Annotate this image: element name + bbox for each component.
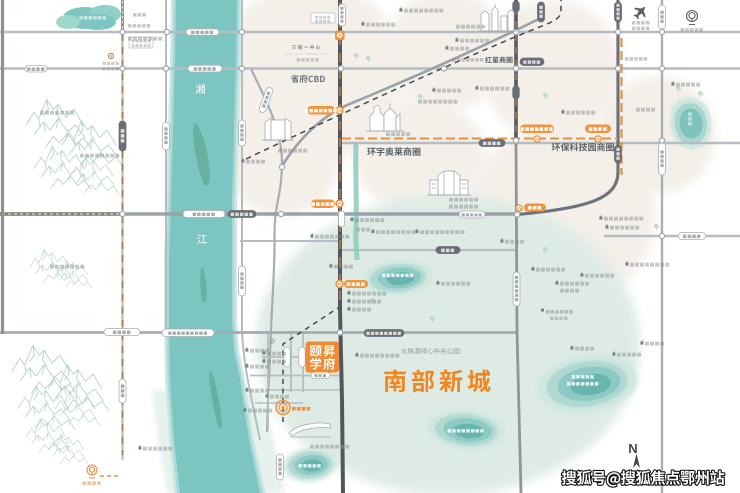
svg-text:SAN TA YI ZHONG XIN: SAN TA YI ZHONG XIN [285, 52, 327, 56]
svg-text:N: N [628, 441, 637, 456]
